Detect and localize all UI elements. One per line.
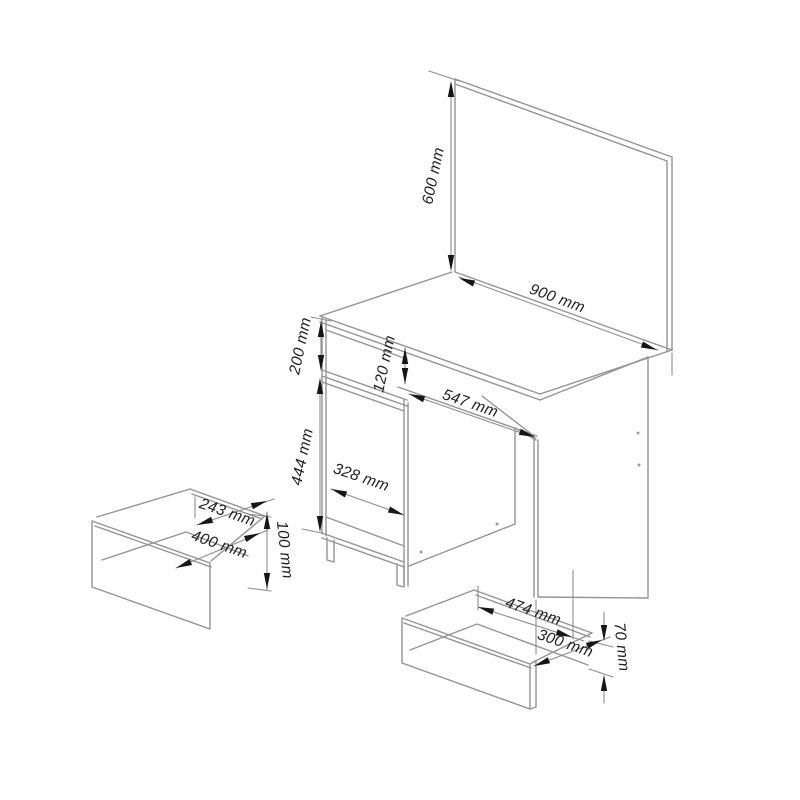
dimension-arrowhead <box>244 533 260 542</box>
ext-444-bottom <box>302 529 322 533</box>
dressing-table-diagram: 600 mm 900 mm 200 mm 120 mm 547 mm 444 m… <box>0 0 800 800</box>
side-panel-cam-hole-upper <box>637 432 640 435</box>
dimension-arrowhead <box>448 255 454 271</box>
dim-line-900 <box>459 277 658 350</box>
mirror-top-edge <box>455 79 672 157</box>
dimension-arrowhead <box>388 507 404 515</box>
dimension-arrowhead <box>402 368 408 384</box>
dimension-arrowhead <box>264 573 270 589</box>
dim-label-right-drawer-height: 70 mm <box>610 622 632 672</box>
cabinet-door-bottom-edge <box>326 517 404 546</box>
desktop-right-edge <box>540 350 672 394</box>
dimension-labels: 600 mm 900 mm 200 mm 120 mm 547 mm 444 m… <box>189 146 632 672</box>
dimension-arrowhead <box>641 342 657 350</box>
ext-mirror-top <box>429 71 459 81</box>
dimension-arrowhead <box>402 348 408 364</box>
dim-label-left-drawer-height: 100 mm <box>273 520 296 579</box>
side-panel-bottom-edge <box>538 597 648 598</box>
dimension-arrowhead <box>331 489 347 497</box>
cabinet-door-top-edge <box>322 382 404 411</box>
left-drawer-left-wall-edge <box>97 489 190 517</box>
desktop-front-edge <box>320 316 540 394</box>
dimension-arrowhead <box>478 607 494 615</box>
dim-label-mirror-width: 900 mm <box>527 281 587 317</box>
dimension-arrowhead <box>197 517 213 525</box>
technical-drawing-page: 600 mm 900 mm 200 mm 120 mm 547 mm 444 m… <box>0 0 800 800</box>
drawer-door-gap-edge <box>322 376 407 406</box>
mirror-top-inner-edge <box>455 84 667 161</box>
dimension-arrowhead <box>318 355 324 371</box>
dimension-arrowhead <box>176 559 192 568</box>
dim-label-left-drawer-width: 400 mm <box>189 527 249 562</box>
side-panel-cam-hole-lower <box>638 464 641 467</box>
kneehole-cam-hole <box>496 523 499 526</box>
right-drawer-left-wall-edge <box>406 590 474 616</box>
dim-label-top-section-height: 200 mm <box>286 316 315 377</box>
dimension-arrowhead <box>448 81 454 97</box>
dim-label-left-drawer-depth: 243 mm <box>196 495 257 530</box>
dimension-arrowhead <box>601 675 607 691</box>
kneehole-floor-edge <box>409 524 515 566</box>
desk-unit <box>320 272 672 598</box>
dim-label-right-drawer-width: 474 mm <box>503 594 563 629</box>
dim-label-front-drawer-height: 120 mm <box>370 334 399 394</box>
dim-label-door-height: 444 mm <box>288 427 317 487</box>
cabinet-cam-hole <box>420 551 423 554</box>
mirror-bottom-edge <box>455 272 672 350</box>
right-foot <box>397 564 404 587</box>
front-drawer-bottom-edge <box>322 370 407 400</box>
dim-label-mirror-height: 600 mm <box>419 146 448 206</box>
right-drawer-front-panel <box>402 618 530 709</box>
arrowheads <box>176 81 657 691</box>
dimension-arrowhead <box>459 278 475 286</box>
dim-label-door-width: 328 mm <box>331 460 391 495</box>
dimension-lines <box>176 71 672 703</box>
desktop-left-edge <box>320 272 452 316</box>
dimension-arrowhead <box>251 501 267 509</box>
side-panel-top-edge <box>540 357 648 400</box>
desktop-front-lower-edge <box>320 322 540 400</box>
dim-label-kneehole-width: 547 mm <box>440 386 500 421</box>
mirror-panel <box>455 79 672 351</box>
